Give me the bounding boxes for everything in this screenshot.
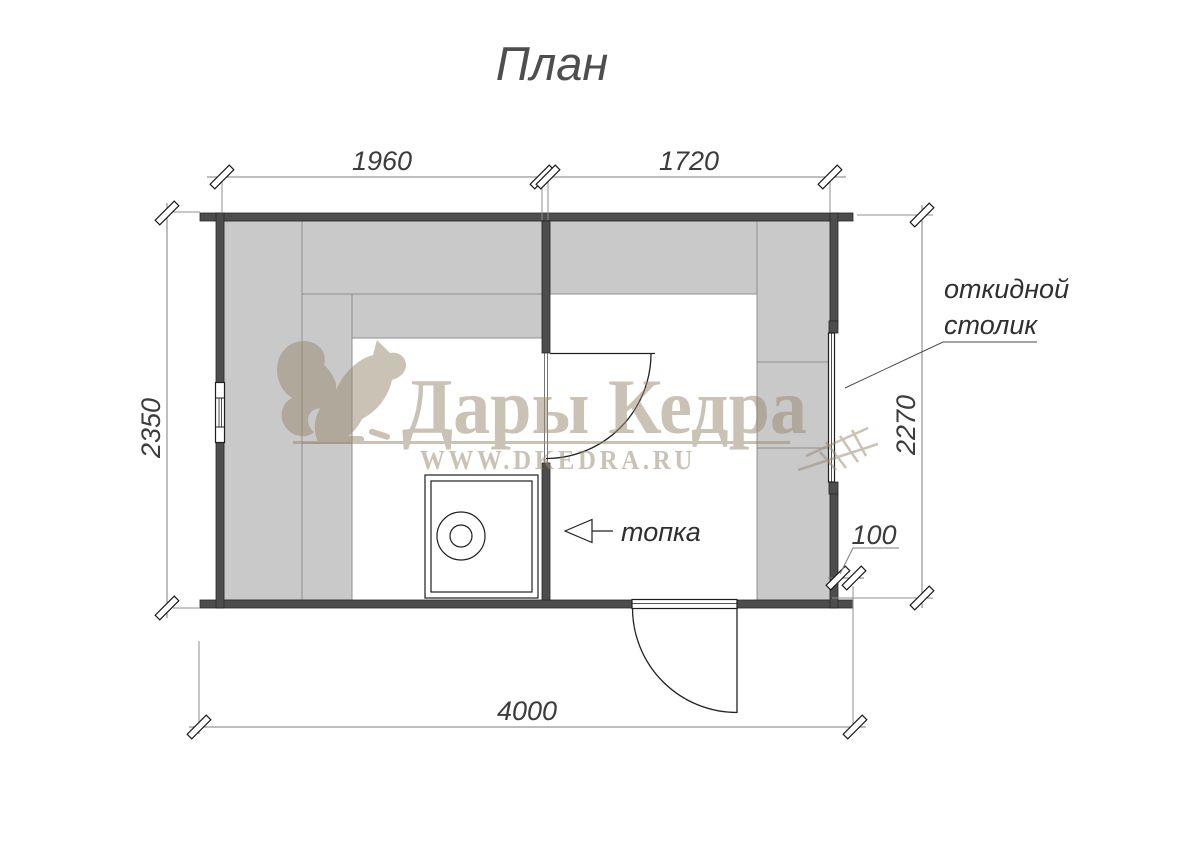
- left-wall-lower: [216, 442, 224, 608]
- left-wall-upper: [216, 213, 224, 383]
- bottom-wall: [200, 600, 853, 608]
- stove: [425, 475, 538, 598]
- dim-washroom-width: 1720: [659, 146, 719, 176]
- dim-top: 1960 1720: [207, 146, 846, 220]
- entrance-door-threshold: [632, 600, 737, 609]
- bench-sauna-top: [302, 221, 542, 294]
- folding-table-jamb-top: [829, 321, 838, 333]
- furnace-arrow-icon: [565, 520, 592, 543]
- stove-burner-inner: [450, 525, 472, 547]
- brand-text: Дары Кедра: [402, 363, 807, 450]
- top-wall: [200, 213, 853, 221]
- dim-right-height: 2270: [891, 395, 921, 456]
- partition-wall-lower: [542, 463, 550, 600]
- bench-sauna-mid-tier: [352, 294, 542, 338]
- dim-bottom: 4000: [187, 586, 867, 739]
- folding-table-text-line2: столик: [944, 310, 1038, 340]
- brand-underline: [293, 441, 790, 444]
- floor-plan-page: План: [0, 0, 1200, 848]
- window-left-wall: [216, 383, 225, 443]
- furnace-text: топка: [621, 517, 701, 547]
- folding-table-jamb-bottom: [829, 482, 838, 494]
- dim-sauna-width: 1960: [352, 146, 412, 176]
- url-text: WWW.DKEDRA.RU: [420, 445, 696, 475]
- partition-wall-upper: [542, 221, 550, 353]
- bench-washroom-top: [550, 221, 757, 294]
- entrance-door-swing-arc: [633, 608, 738, 713]
- entrance-door: [632, 600, 737, 714]
- dim-overhang-value: 100: [851, 520, 896, 550]
- dim-left-height: 2350: [136, 398, 166, 459]
- floor-plan-drawing: План: [0, 0, 1200, 848]
- leader-line: [845, 342, 1037, 388]
- folding-table-label: откидной столик: [845, 274, 1069, 388]
- dim-total-width: 4000: [497, 696, 557, 726]
- page-title: План: [496, 37, 609, 90]
- right-wall-lower: [830, 493, 838, 608]
- dim-left: 2350: [136, 201, 200, 620]
- furnace-label: топка: [565, 517, 701, 547]
- right-wall-upper: [830, 213, 838, 322]
- folding-table-text-line1: откидной: [944, 274, 1069, 304]
